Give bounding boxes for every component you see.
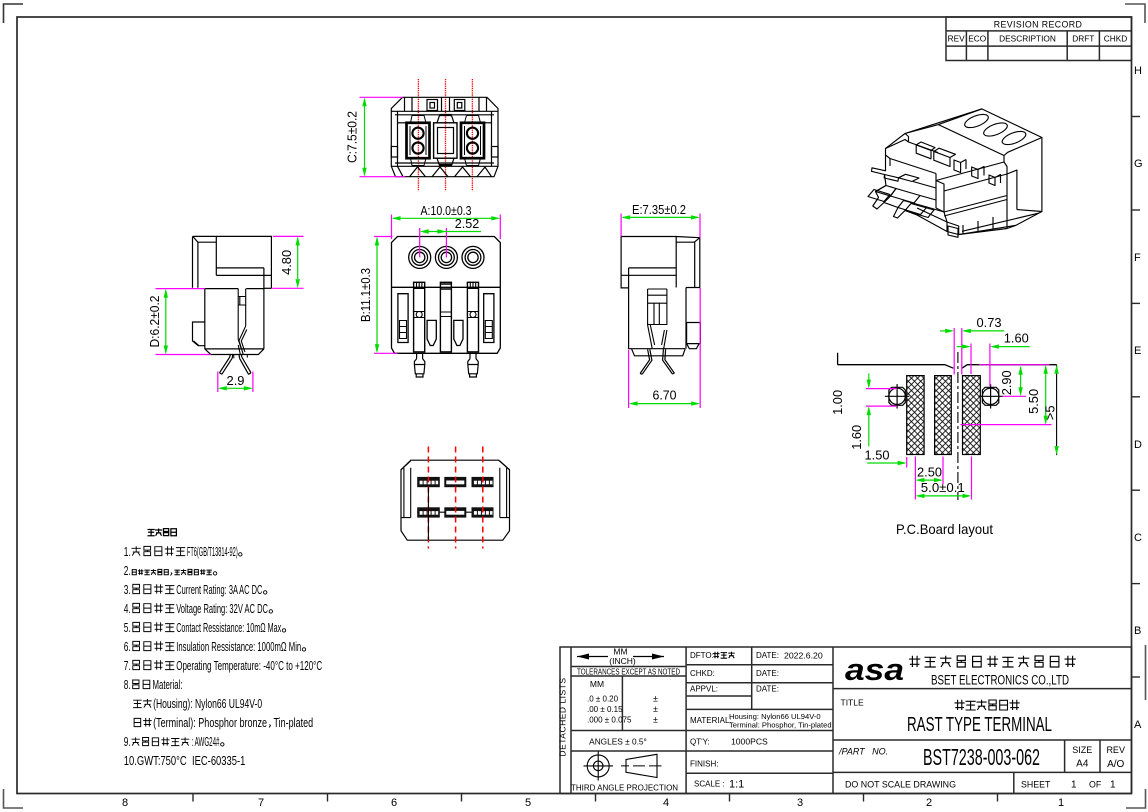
svg-text:FINISH:: FINISH: — [690, 760, 718, 769]
svg-text:OF: OF — [1089, 780, 1102, 790]
svg-text:F: F — [1134, 252, 1141, 264]
svg-text:TOLERANCES EXCEPT AS NOTED: TOLERANCES EXCEPT AS NOTED — [577, 667, 680, 676]
svg-text:: AWG24#: : AWG24# — [192, 734, 220, 749]
svg-text:1.60: 1.60 — [850, 425, 864, 450]
svg-text:E:7.35±0.2: E:7.35±0.2 — [632, 203, 686, 217]
svg-text:5.50: 5.50 — [1027, 389, 1041, 414]
svg-text:±: ± — [653, 715, 658, 725]
svg-text:.000 ± 0.075: .000 ± 0.075 — [587, 716, 632, 725]
svg-text:THIRD ANGLE PROJECTION: THIRD ANGLE PROJECTION — [571, 784, 678, 793]
svg-text:SIZE: SIZE — [1072, 745, 1092, 755]
svg-text:B: B — [1134, 625, 1141, 637]
svg-text:DRFT: DRFT — [1072, 34, 1094, 44]
svg-text:1.60: 1.60 — [1004, 332, 1029, 346]
svg-text:.00 ± 0.15: .00 ± 0.15 — [587, 705, 623, 714]
svg-text:CHKD: CHKD — [1104, 34, 1128, 44]
svg-text:6.70: 6.70 — [653, 389, 677, 403]
svg-text:±: ± — [653, 694, 658, 704]
svg-text:SCALE :: SCALE : — [694, 780, 725, 789]
svg-text:Material:: Material: — [153, 677, 183, 692]
svg-text:/PART NO.: /PART NO. — [838, 747, 888, 757]
svg-text:A4: A4 — [1076, 759, 1089, 770]
svg-text:D: D — [1134, 439, 1142, 451]
svg-text:2.90: 2.90 — [1000, 370, 1014, 395]
svg-text:DETACHED LISTS: DETACHED LISTS — [558, 677, 568, 756]
svg-text:QT'Y:: QT'Y: — [690, 738, 710, 747]
svg-text:A: A — [1134, 719, 1142, 731]
svg-text:7: 7 — [258, 797, 264, 809]
svg-text:8: 8 — [122, 797, 128, 809]
svg-text:Contact Ressistance: 10mΩ Max: Contact Ressistance: 10mΩ Max — [176, 620, 281, 635]
svg-text:BSET ELECTRONICS CO.,LTD: BSET ELECTRONICS CO.,LTD — [931, 673, 1069, 688]
svg-text:G: G — [1134, 158, 1143, 170]
svg-text:DATE:: DATE: — [756, 651, 779, 660]
svg-text:REV: REV — [948, 34, 966, 44]
svg-text:.0 ± 0.20: .0 ± 0.20 — [587, 695, 619, 704]
svg-text:D:6.2±0.2: D:6.2±0.2 — [148, 295, 162, 347]
svg-text:B:11.1±0.3: B:11.1±0.3 — [359, 268, 373, 322]
svg-text:1:1: 1:1 — [729, 779, 744, 791]
svg-text:7.: 7. — [124, 658, 131, 673]
svg-text:E: E — [1134, 345, 1141, 357]
svg-text:REV: REV — [1106, 745, 1125, 755]
svg-text:2022.6.20: 2022.6.20 — [784, 651, 823, 661]
svg-text:MATERIAL:: MATERIAL: — [690, 716, 732, 725]
svg-text:±: ± — [653, 704, 658, 714]
svg-text:DESCRIPTION: DESCRIPTION — [999, 34, 1056, 44]
svg-text:3.: 3. — [124, 582, 131, 597]
svg-text:APPVL:: APPVL: — [690, 685, 718, 694]
svg-text:ANGLES ± 0.5°: ANGLES ± 0.5° — [589, 737, 647, 747]
svg-text:4.: 4. — [124, 601, 131, 616]
svg-text:1: 1 — [1058, 797, 1064, 809]
svg-text:H: H — [1134, 65, 1142, 77]
svg-text:6.: 6. — [124, 639, 131, 654]
svg-text:0.73: 0.73 — [977, 316, 1002, 330]
svg-text:10.GWT:750°C IEC-60335-1: 10.GWT:750°C IEC-60335-1 — [124, 753, 246, 768]
svg-text:2.9: 2.9 — [227, 374, 245, 388]
svg-text:5.0±0.1: 5.0±0.1 — [921, 481, 965, 495]
svg-text:DATE:: DATE: — [756, 669, 779, 678]
svg-text:2.50: 2.50 — [917, 465, 942, 479]
svg-text:Insulation Ressistance: 1000mΩ: Insulation Ressistance: 1000mΩ Min — [176, 639, 301, 654]
svg-text:(INCH): (INCH) — [609, 656, 636, 666]
svg-text:>5: >5 — [1043, 405, 1058, 420]
svg-text:4.80: 4.80 — [280, 250, 294, 275]
svg-text:9.: 9. — [124, 734, 131, 749]
svg-text:1.50: 1.50 — [865, 448, 890, 462]
svg-text:(Housing): Nylon66 UL94V-0: (Housing): Nylon66 UL94V-0 — [153, 696, 262, 711]
svg-text:Terminal: Phosphor, Tin-plated: Terminal: Phosphor, Tin-plated — [729, 721, 832, 730]
svg-text:1.: 1. — [124, 544, 131, 559]
svg-text:FT6(GB/T13814-92): FT6(GB/T13814-92) — [187, 544, 238, 559]
svg-text:C: C — [1134, 532, 1142, 544]
svg-text:5.: 5. — [124, 620, 131, 635]
svg-text:(Terminal): Phosphor bronze: (Terminal): Phosphor bronze — [153, 715, 267, 730]
svg-text:A:10.0±0.3: A:10.0±0.3 — [421, 204, 472, 218]
svg-text:6: 6 — [391, 797, 397, 809]
svg-text:Tin-plated: Tin-plated — [274, 715, 314, 730]
svg-text:4: 4 — [663, 797, 669, 809]
svg-text:RAST TYPE TERMINAL: RAST TYPE TERMINAL — [907, 714, 1052, 736]
svg-text:SHEET: SHEET — [1021, 780, 1051, 790]
svg-text:asa: asa — [845, 652, 904, 687]
svg-text:2: 2 — [926, 797, 932, 809]
svg-text:1.00: 1.00 — [831, 390, 845, 415]
svg-text:2.: 2. — [124, 563, 131, 578]
svg-text:Current Rating: 3A AC DC: Current Rating: 3A AC DC — [176, 582, 262, 597]
svg-text:ECO: ECO — [968, 34, 987, 44]
svg-text:DATE:: DATE: — [756, 685, 779, 694]
svg-text:1: 1 — [1071, 780, 1077, 791]
svg-text:CHKD:: CHKD: — [690, 669, 715, 678]
svg-text:3: 3 — [797, 797, 803, 809]
svg-text:A/O: A/O — [1107, 759, 1124, 770]
svg-text:2.52: 2.52 — [455, 217, 480, 231]
svg-text:1000PCS: 1000PCS — [731, 737, 768, 747]
svg-text:REVISION RECORD: REVISION RECORD — [994, 19, 1083, 29]
svg-text:5: 5 — [525, 797, 531, 809]
svg-text:8.: 8. — [124, 677, 131, 692]
svg-text:Operating Temperature: -40°C t: Operating Temperature: -40°C to +120°C — [176, 658, 322, 673]
svg-text:1: 1 — [1110, 780, 1116, 791]
svg-text:P.C.Board layout: P.C.Board layout — [896, 521, 993, 537]
svg-text:TITLE: TITLE — [841, 698, 864, 708]
svg-text:DO NOT SCALE DRAWING: DO NOT SCALE DRAWING — [845, 780, 956, 790]
svg-text:Voltage Rating: 32V AC DC: Voltage Rating: 32V AC DC — [176, 601, 268, 616]
svg-text:C:7.5±0.2: C:7.5±0.2 — [346, 111, 360, 163]
svg-text:MM: MM — [613, 647, 627, 657]
svg-text:MM: MM — [590, 679, 604, 689]
svg-text:DFTO:: DFTO: — [690, 651, 714, 660]
svg-text:BST7238-003-062: BST7238-003-062 — [923, 744, 1040, 770]
